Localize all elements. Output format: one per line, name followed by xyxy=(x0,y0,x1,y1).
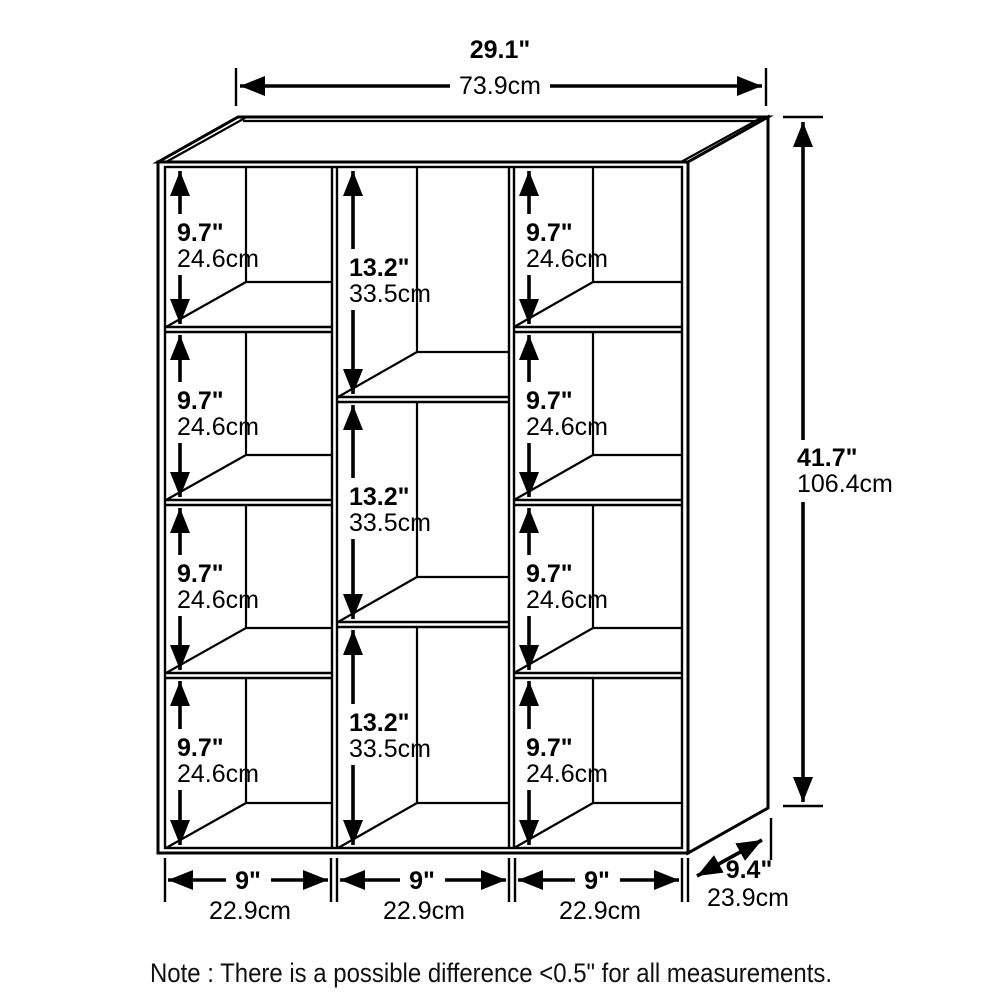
side-face xyxy=(688,117,768,853)
measurement-note: Note : There is a possible difference <0… xyxy=(150,958,832,988)
left-cube3-cm: 24.6cm xyxy=(177,586,259,614)
middle-cube-dimensions: 13.2" 33.5cm 13.2" 33.5cm 13.2" 33.5cm xyxy=(349,171,431,845)
right-cube2-inches: 9.7" xyxy=(526,387,573,415)
middle-cube3-inches: 13.2" xyxy=(349,709,410,737)
right-cube2-cm: 24.6cm xyxy=(526,413,608,441)
top-face xyxy=(158,117,768,162)
right-cube3-inches: 9.7" xyxy=(526,560,573,588)
cabinet-outline xyxy=(158,117,768,853)
middle-cube2-inches: 13.2" xyxy=(349,483,410,511)
right-cube4-cm: 24.6cm xyxy=(526,760,608,788)
depth-cm: 23.9cm xyxy=(707,884,789,912)
overall-width-inches: 29.1" xyxy=(470,36,531,64)
left-cube3-inches: 9.7" xyxy=(177,560,224,588)
column3-width-inches: 9" xyxy=(584,867,610,895)
column1-width-cm: 22.9cm xyxy=(209,897,291,925)
overall-height-cm: 106.4cm xyxy=(797,470,893,498)
left-cube4-cm: 24.6cm xyxy=(177,760,259,788)
column-width-dimensions: 9" 22.9cm 9" 22.9cm 9" 22.9cm xyxy=(165,858,688,925)
divider-left xyxy=(332,167,337,848)
dimension-diagram: 29.1" 73.9cm 41.7" 106.4cm 9" 22.9cm 9" … xyxy=(0,0,1000,1000)
right-cube-dimensions: 9.7" 24.6cm 9.7" 24.6cm 9.7" 24.6cm 9.7"… xyxy=(526,171,608,845)
overall-height-inches: 41.7" xyxy=(797,444,858,472)
bookcase-diagram-svg: 29.1" 73.9cm 41.7" 106.4cm 9" 22.9cm 9" … xyxy=(0,0,1000,1000)
right-cube1-cm: 24.6cm xyxy=(526,245,608,273)
left-cube2-cm: 24.6cm xyxy=(177,413,259,441)
overall-width-dimension: 29.1" 73.9cm xyxy=(236,36,766,106)
left-cube4-inches: 9.7" xyxy=(177,734,224,762)
middle-cube3-cm: 33.5cm xyxy=(349,735,431,763)
middle-cube1-cm: 33.5cm xyxy=(349,280,431,308)
divider-right xyxy=(509,167,514,848)
right-cube3-cm: 24.6cm xyxy=(526,586,608,614)
right-cube4-inches: 9.7" xyxy=(526,734,573,762)
left-cube1-inches: 9.7" xyxy=(177,219,224,247)
left-cube1-cm: 24.6cm xyxy=(177,245,259,273)
overall-height-dimension: 41.7" 106.4cm xyxy=(783,117,893,806)
column3-width-cm: 22.9cm xyxy=(559,897,641,925)
depth-inches: 9.4" xyxy=(726,856,773,884)
column2-width-cm: 22.9cm xyxy=(383,897,465,925)
column1-width-inches: 9" xyxy=(235,867,261,895)
middle-cube1-inches: 13.2" xyxy=(349,254,410,282)
middle-cube2-cm: 33.5cm xyxy=(349,509,431,537)
overall-width-cm: 73.9cm xyxy=(459,72,541,100)
column2-width-inches: 9" xyxy=(409,867,435,895)
right-cube1-inches: 9.7" xyxy=(526,219,573,247)
left-cube2-inches: 9.7" xyxy=(177,387,224,415)
